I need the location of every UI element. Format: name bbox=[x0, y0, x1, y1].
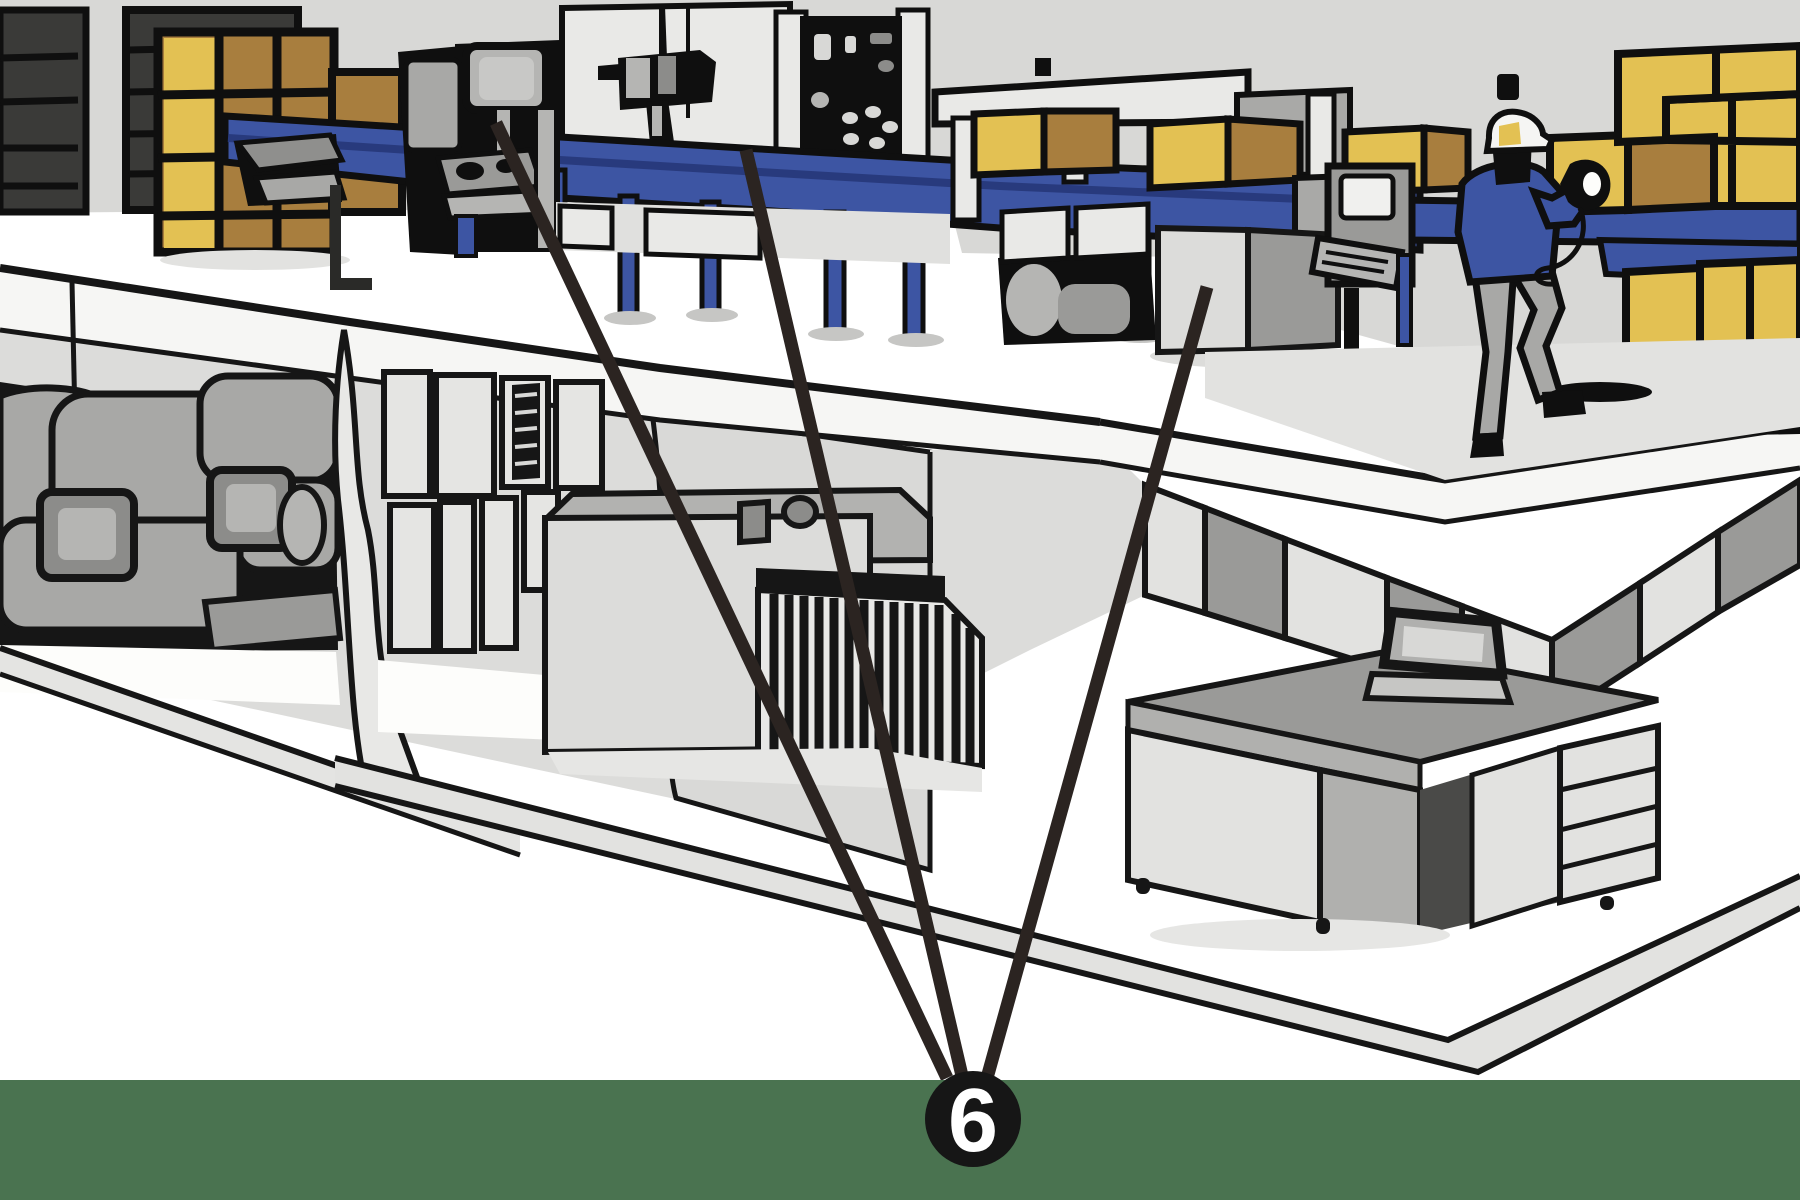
svg-text:6: 6 bbox=[948, 1071, 998, 1171]
